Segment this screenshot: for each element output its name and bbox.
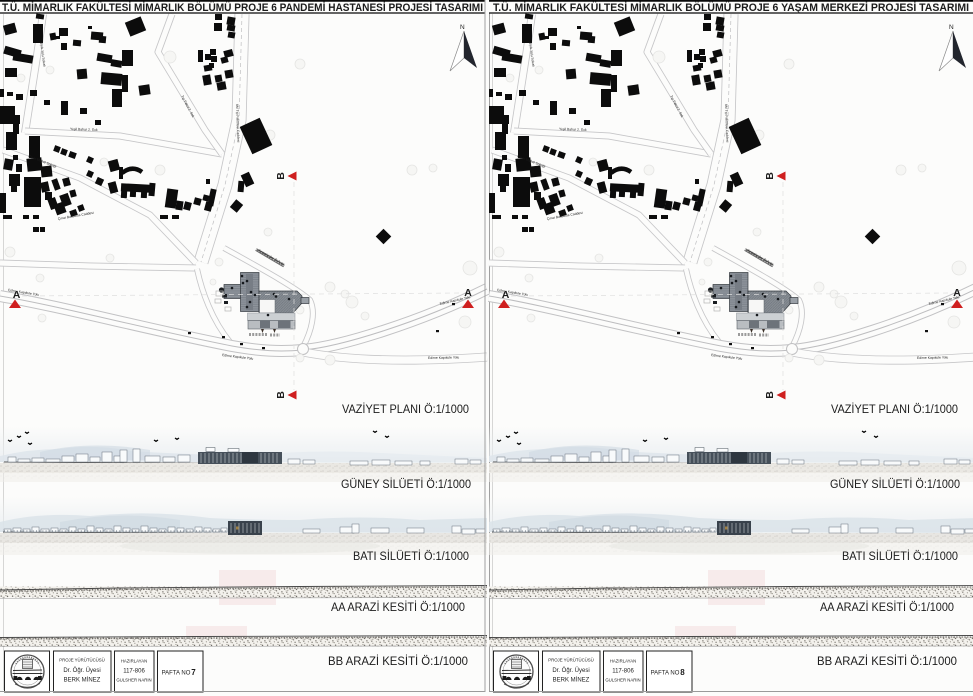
- svg-text:T.Ü. MİMARLIK FAKÜLTESİ MİMARL: T.Ü. MİMARLIK FAKÜLTESİ MİMARLIK BÖLÜMÜ …: [2, 1, 483, 14]
- svg-text:7: 7: [191, 668, 196, 677]
- svg-text:8: 8: [680, 668, 685, 677]
- svg-text:T.Ü. MİMARLIK FAKÜLTESİ MİMARL: T.Ü. MİMARLIK FAKÜLTESİ MİMARLIK BÖLÜMÜ …: [493, 1, 969, 14]
